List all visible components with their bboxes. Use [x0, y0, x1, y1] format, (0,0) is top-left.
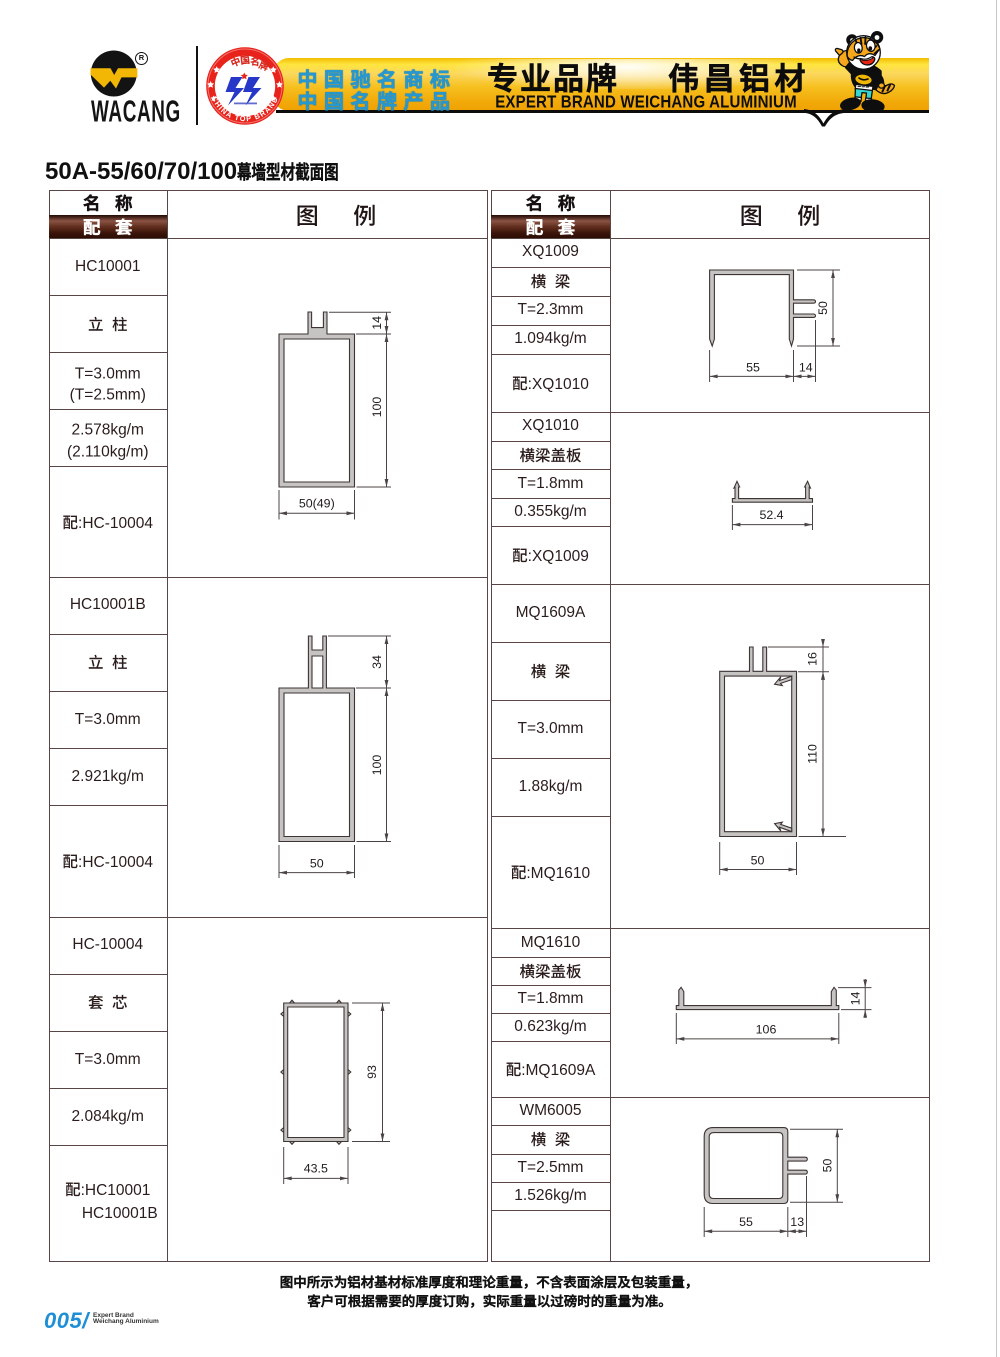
- svg-text:55: 55: [746, 360, 760, 374]
- svg-text:50(49): 50(49): [299, 496, 335, 510]
- svg-text:110: 110: [806, 744, 820, 764]
- svg-text:50: 50: [820, 1159, 834, 1173]
- svg-text:14: 14: [849, 992, 863, 1006]
- svg-text:52.4: 52.4: [759, 508, 783, 522]
- svg-text:50: 50: [751, 853, 765, 867]
- svg-text:14: 14: [799, 360, 813, 374]
- svg-text:93: 93: [365, 1065, 379, 1079]
- svg-text:100: 100: [370, 397, 384, 418]
- svg-text:34: 34: [370, 655, 384, 669]
- svg-text:16: 16: [806, 652, 820, 666]
- svg-text:50: 50: [816, 301, 830, 315]
- svg-text:13: 13: [790, 1215, 804, 1229]
- svg-text:100: 100: [370, 755, 384, 776]
- svg-text:43.5: 43.5: [304, 1161, 328, 1175]
- svg-text:55: 55: [739, 1215, 753, 1229]
- svg-text:106: 106: [756, 1022, 777, 1036]
- svg-text:14: 14: [370, 316, 384, 330]
- svg-text:50: 50: [310, 856, 324, 870]
